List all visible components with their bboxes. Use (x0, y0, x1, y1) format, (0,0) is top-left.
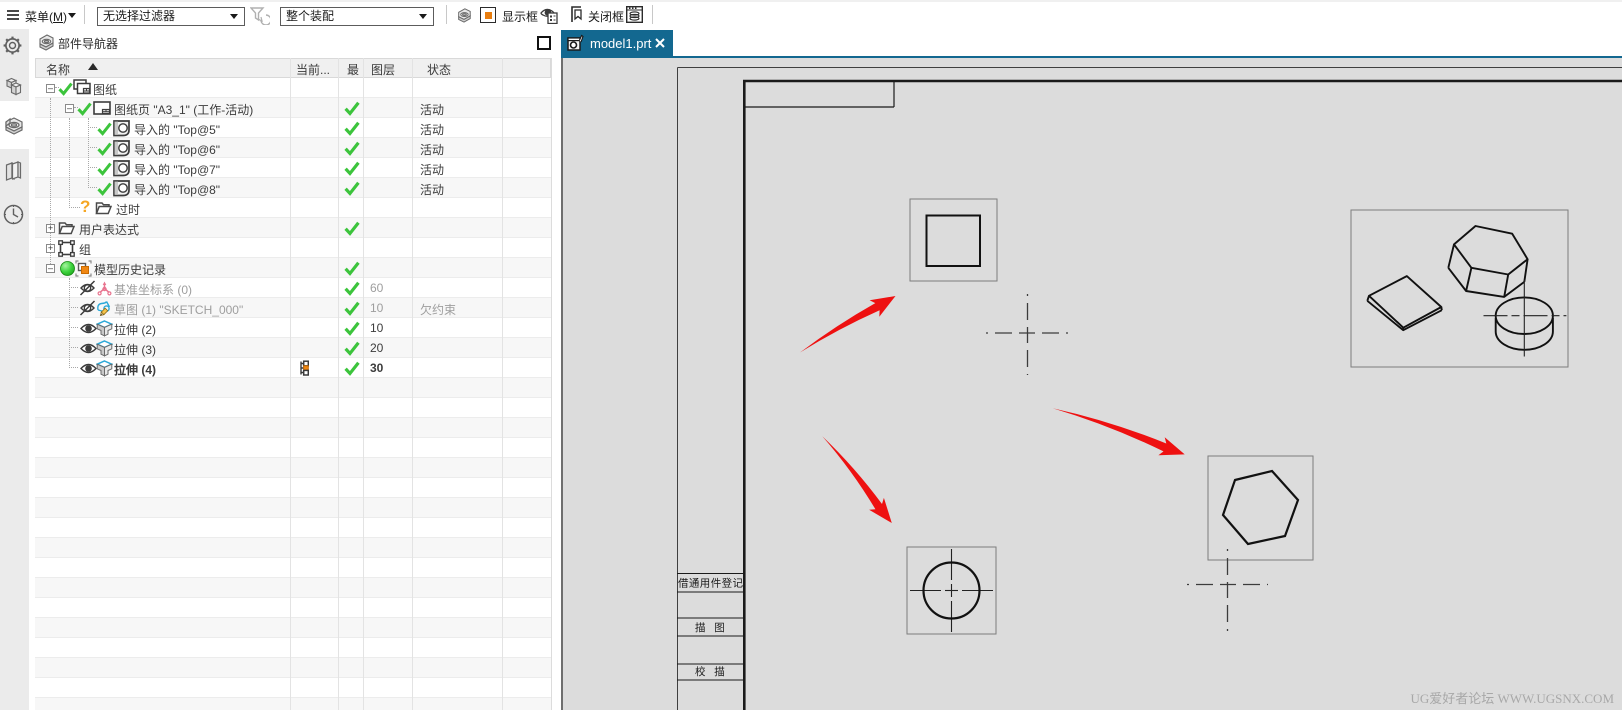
svg-text:校 描: 校 描 (695, 665, 725, 678)
svg-text:描 图: 描 图 (695, 621, 725, 634)
svg-text:借通用件登记: 借通用件登记 (678, 577, 744, 590)
